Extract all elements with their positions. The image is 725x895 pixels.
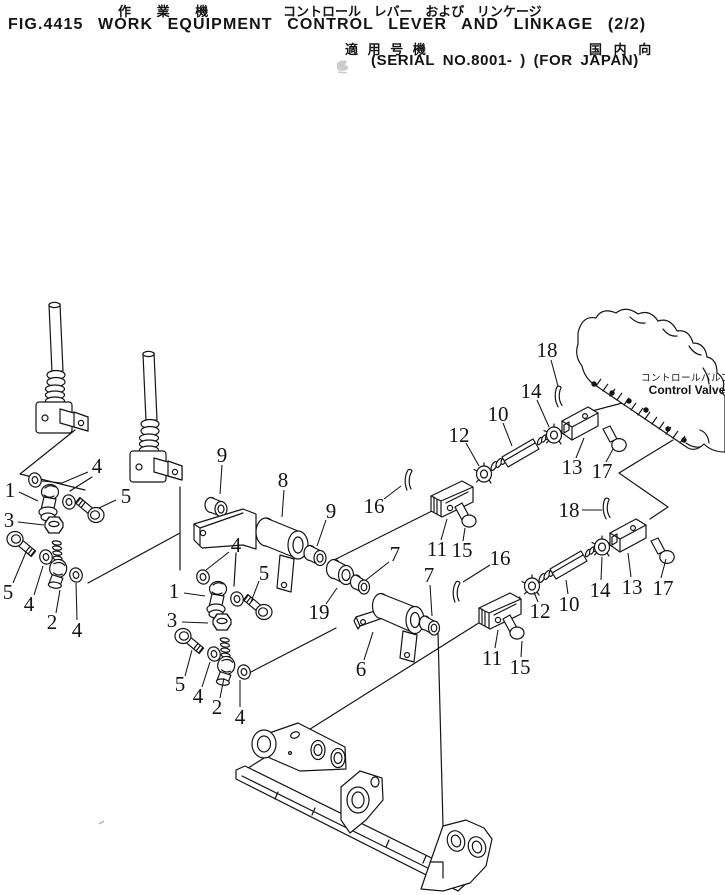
- callout-11: 11: [482, 646, 502, 670]
- callout-leader-1: [184, 593, 205, 596]
- callout-18: 18: [559, 498, 580, 522]
- callout-leader-3: [182, 622, 208, 623]
- callout-leader-4: [42, 472, 88, 483]
- callout-13: 13: [562, 455, 583, 479]
- callout-9: 9: [326, 499, 337, 523]
- callout-4: 4: [72, 618, 83, 642]
- callout-14: 14: [521, 379, 543, 403]
- callout-16: 16: [490, 546, 511, 570]
- callout-leader-5: [99, 500, 116, 508]
- callout-leader-16: [384, 486, 401, 499]
- lever-6: [354, 594, 424, 663]
- callout-17: 17: [592, 459, 613, 483]
- callout-4: 4: [193, 684, 204, 708]
- callout-leader-8: [282, 490, 284, 517]
- callout-15: 15: [452, 538, 473, 562]
- control-lever-1: [36, 302, 88, 433]
- callout-leader-6: [364, 632, 373, 660]
- mounting-bracket: [236, 723, 492, 891]
- callout-leader-9: [317, 520, 326, 546]
- callout-4: 4: [24, 592, 35, 616]
- callout-14: 14: [590, 578, 612, 602]
- callout-16: 16: [364, 494, 385, 518]
- callout-10: 10: [559, 592, 580, 616]
- callout-4: 4: [235, 705, 246, 729]
- callout-18: 18: [537, 338, 558, 362]
- control-valve: コントロールバルブ Control Valve: [577, 309, 725, 452]
- callout-11: 11: [427, 537, 447, 561]
- callout-1: 1: [169, 579, 180, 603]
- linkage-upper: [405, 386, 626, 527]
- callout-leader-10: [503, 423, 512, 446]
- exploded-parts-diagram: コントロールバルブ Control Valve: [0, 0, 725, 895]
- callout-13: 13: [622, 575, 643, 599]
- callout-2: 2: [212, 695, 223, 719]
- callout-leader-7: [430, 585, 432, 616]
- callout-5: 5: [121, 484, 132, 508]
- callout-leader-4: [206, 552, 229, 570]
- callout-leader-1: [19, 492, 38, 501]
- callout-6: 6: [356, 657, 367, 681]
- callout-leader-14: [537, 400, 549, 427]
- control-valve-label-en: Control Valve: [649, 383, 725, 397]
- callout-15: 15: [510, 655, 531, 679]
- callout-7: 7: [390, 542, 401, 566]
- control-lever-2: [130, 351, 182, 482]
- callout-leader-4: [76, 583, 77, 620]
- callout-9: 9: [217, 443, 228, 467]
- callout-12: 12: [449, 423, 470, 447]
- callout-4: 4: [231, 533, 242, 557]
- callouts-layer: 4153542441355424989197761611151210141813…: [3, 338, 674, 729]
- callout-8: 8: [278, 468, 289, 492]
- bracket-left-boss: [252, 723, 346, 771]
- callout-3: 3: [167, 608, 178, 632]
- callout-leader-9: [220, 465, 222, 494]
- callout-leader-14: [601, 557, 602, 580]
- callout-leader-7: [366, 562, 389, 580]
- parts-catalog-page: 作 業 機 コントロール レバー および リンケージ FIG.4415 WORK…: [0, 0, 725, 895]
- callout-5: 5: [3, 580, 14, 604]
- callout-2: 2: [47, 610, 58, 634]
- callout-leader-16: [463, 565, 490, 582]
- callout-4: 4: [92, 454, 103, 478]
- bracket-right-boss: [421, 820, 492, 891]
- joint-hardware-set-1: [7, 471, 104, 589]
- bushing-9b: [304, 546, 326, 566]
- callout-leader-18: [551, 360, 558, 386]
- callout-17: 17: [653, 576, 674, 600]
- bushing-7b: [420, 616, 440, 635]
- callout-7: 7: [424, 563, 435, 587]
- bell-crank: [194, 509, 308, 592]
- bushing-9a: [205, 498, 227, 517]
- collar-19: [327, 560, 354, 585]
- callout-5: 5: [175, 672, 186, 696]
- callout-19: 19: [309, 600, 330, 624]
- callout-leader-5: [13, 552, 26, 583]
- callout-1: 1: [5, 478, 16, 502]
- callout-leader-13: [628, 553, 631, 577]
- callout-5: 5: [259, 561, 270, 585]
- bushing-7a: [351, 575, 370, 594]
- callout-3: 3: [4, 508, 15, 532]
- callout-leader-5: [185, 650, 192, 676]
- callout-leader-3: [18, 522, 44, 525]
- callout-10: 10: [488, 402, 509, 426]
- callout-leader-4: [34, 566, 43, 595]
- callout-12: 12: [530, 599, 551, 623]
- bracket-center-boss: [341, 771, 383, 833]
